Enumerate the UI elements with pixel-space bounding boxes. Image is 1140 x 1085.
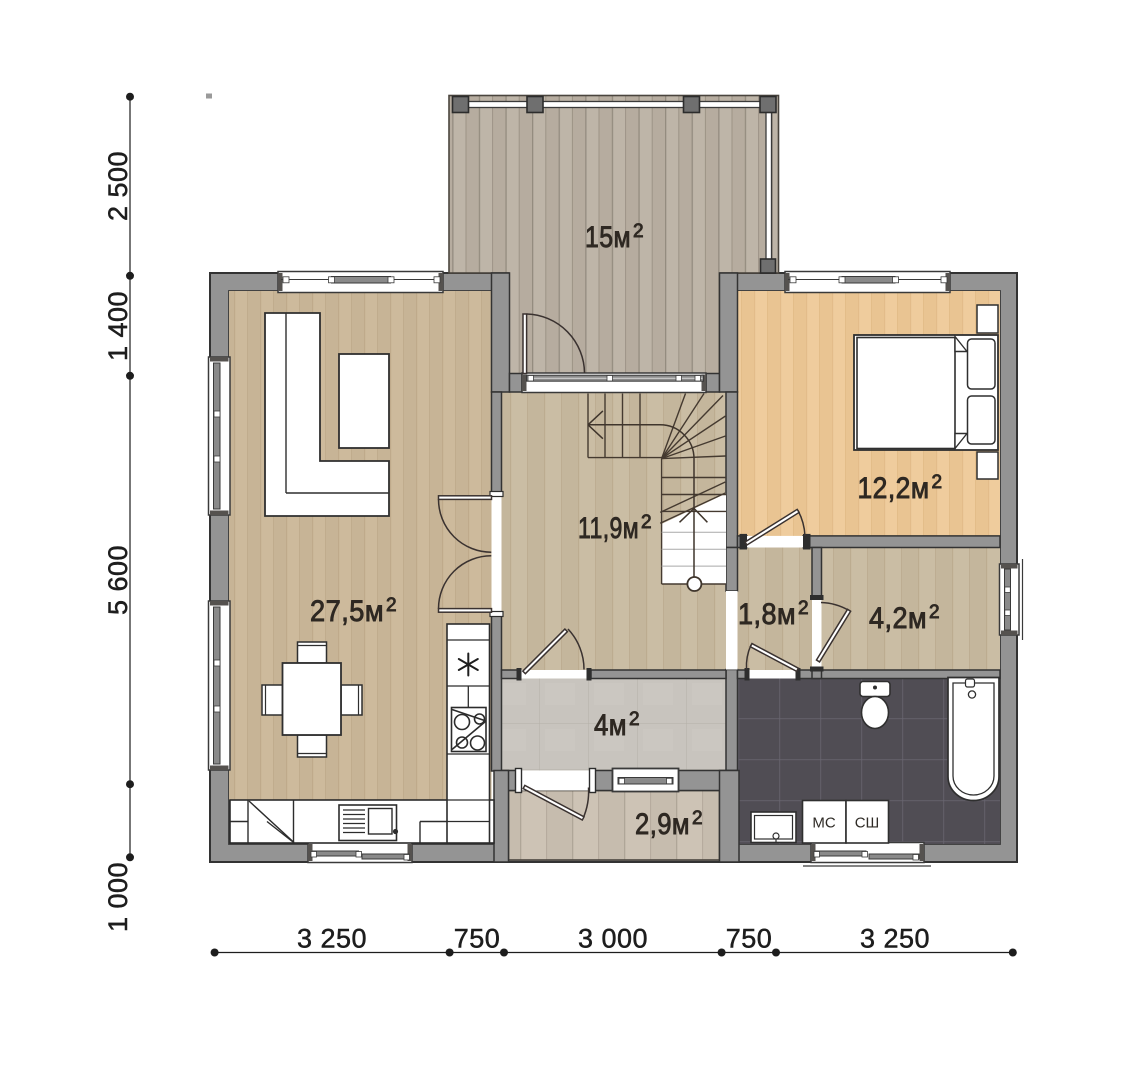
svg-text:15м: 15м xyxy=(585,221,631,254)
svg-text:1 400: 1 400 xyxy=(103,291,133,361)
svg-text:1,8м: 1,8м xyxy=(738,598,796,631)
svg-text:27,5м: 27,5м xyxy=(310,595,384,628)
svg-text:2: 2 xyxy=(629,709,640,730)
svg-text:2: 2 xyxy=(633,221,644,242)
svg-text:2,9м: 2,9м xyxy=(635,808,690,841)
svg-text:750: 750 xyxy=(454,924,501,954)
svg-text:2: 2 xyxy=(932,472,943,493)
svg-text:11,9м: 11,9м xyxy=(578,512,639,545)
svg-text:3 250: 3 250 xyxy=(297,924,367,954)
svg-text:МС: МС xyxy=(812,815,835,832)
svg-text:СШ: СШ xyxy=(855,815,880,832)
svg-text:12,2м: 12,2м xyxy=(858,472,930,505)
svg-text:2: 2 xyxy=(798,598,809,619)
svg-text:2 500: 2 500 xyxy=(103,151,133,221)
svg-text:2: 2 xyxy=(692,808,703,829)
svg-text:4м: 4м xyxy=(594,709,627,742)
svg-text:4,2м: 4,2м xyxy=(869,602,927,635)
svg-text:3 000: 3 000 xyxy=(578,924,648,954)
svg-text:3 250: 3 250 xyxy=(860,924,930,954)
svg-text:2: 2 xyxy=(641,512,652,533)
svg-text:750: 750 xyxy=(726,924,773,954)
svg-text:5 600: 5 600 xyxy=(103,545,133,615)
svg-text:1 000: 1 000 xyxy=(103,862,133,932)
svg-text:2: 2 xyxy=(386,595,397,616)
svg-text:2: 2 xyxy=(929,602,940,623)
